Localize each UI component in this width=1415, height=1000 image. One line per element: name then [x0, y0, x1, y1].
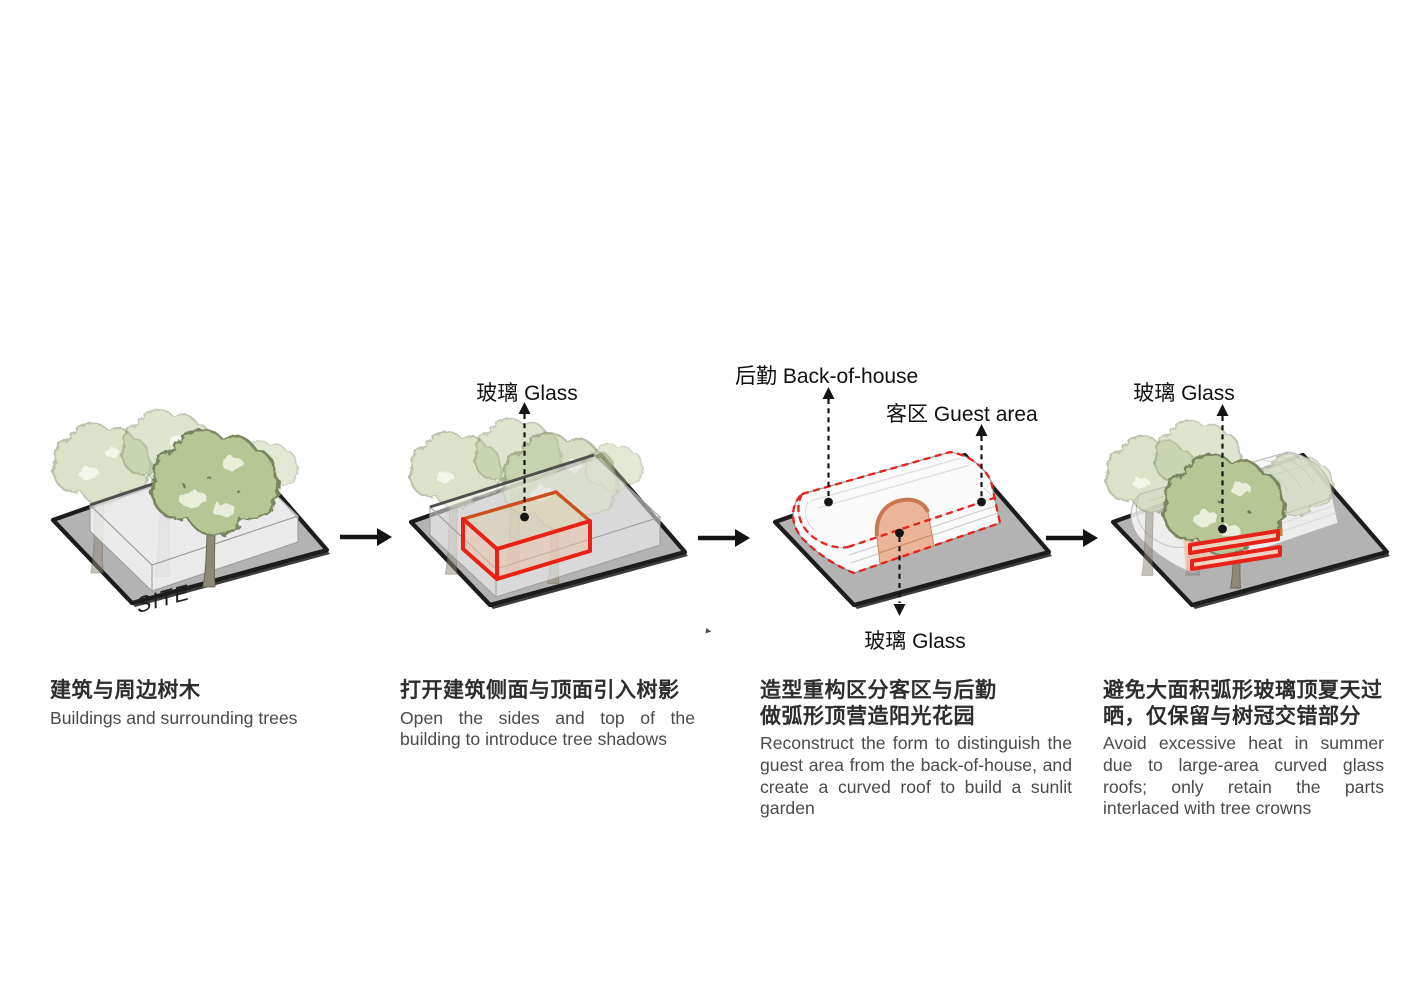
open-building-illustration	[398, 412, 698, 652]
flow-arrow-icon	[339, 526, 393, 548]
annotation-glass-bottom-label: 玻璃 Glass	[850, 625, 980, 655]
caption-panel-1: 建筑与周边树木 Buildings and surrounding trees	[50, 678, 370, 729]
annotation-dot	[520, 513, 529, 522]
annotation-dot	[895, 529, 904, 538]
annotation-dot	[977, 498, 986, 507]
caption-heading-zh: 建筑与周边树木	[50, 678, 370, 704]
avoid-heat-illustration	[1100, 412, 1400, 652]
cursor-artifact: ▸	[705, 624, 713, 638]
dashed-arrow-icon	[820, 386, 837, 508]
caption-heading-zh: 打开建筑侧面与顶面引入树影	[400, 678, 695, 704]
caption-panel-3: 造型重构区分客区与后勤 做弧形顶营造阳光花园 Reconstruct the f…	[760, 678, 1072, 820]
annotation-glass-label: 玻璃 Glass	[1109, 377, 1259, 407]
dashed-arrow-icon	[1214, 403, 1231, 534]
dashed-arrow-icon	[973, 423, 990, 508]
caption-panel-2: 打开建筑侧面与顶面引入树影 Open the sides and top of …	[400, 678, 695, 751]
dashed-arrow-icon	[891, 527, 908, 617]
diagram-canvas: SITE	[0, 0, 1415, 1000]
flow-arrow-icon	[1045, 527, 1099, 549]
site-illustration	[40, 410, 340, 650]
annotation-guest-area-label: 客区 Guest area	[886, 398, 1038, 428]
reconstruct-illustration	[762, 412, 1062, 657]
caption-text-en: Avoid excessive heat in summer due to la…	[1103, 733, 1384, 820]
caption-heading-zh: 晒，仅保留与树冠交错部分	[1103, 704, 1384, 730]
annotation-dot	[824, 498, 833, 507]
caption-panel-4: 避免大面积弧形玻璃顶夏天过 晒，仅保留与树冠交错部分 Avoid excessi…	[1103, 678, 1384, 820]
caption-heading-zh: 避免大面积弧形玻璃顶夏天过	[1103, 678, 1384, 704]
dashed-arrow-icon	[516, 401, 533, 525]
caption-heading-zh: 做弧形顶营造阳光花园	[760, 704, 1072, 730]
caption-text-en: Buildings and surrounding trees	[50, 708, 370, 730]
caption-text-en: Reconstruct the form to distinguish the …	[760, 733, 1072, 820]
flow-arrow-icon	[697, 527, 751, 549]
caption-text-en: Open the sides and top of the building t…	[400, 708, 695, 752]
annotation-dot	[1218, 525, 1227, 534]
caption-heading-zh: 造型重构区分客区与后勤	[760, 678, 1072, 704]
